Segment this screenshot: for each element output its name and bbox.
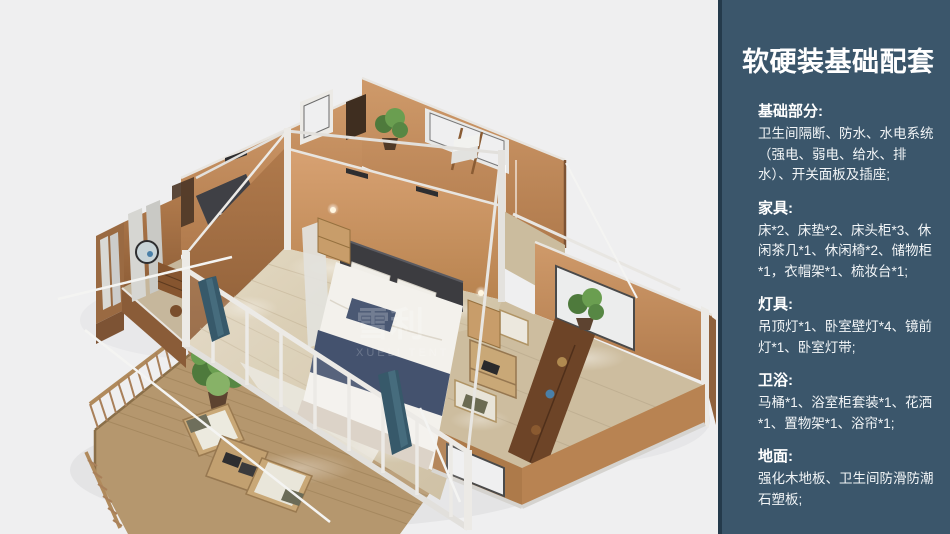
- section-floor-heading: 地面:: [758, 447, 936, 466]
- frame-post: [284, 128, 291, 250]
- section-basics-body: 卫生间隔断、防水、水电系统（强电、弱电、给水、排水）、开关面板及插座;: [758, 124, 936, 186]
- floorplan-render: 雪利 XUELI TENT: [0, 0, 720, 534]
- watermark-cn: 雪利: [356, 306, 424, 344]
- section-lighting: 灯具: 吊顶灯*1、卧室壁灯*4、镜前灯*1、卧室灯带;: [758, 295, 936, 358]
- section-furniture-body: 床*2、床垫*2、床头柜*3、休闲茶几*1、休闲椅*2、储物柜*1，衣帽架*1、…: [758, 221, 936, 283]
- section-floor: 地面: 强化木地板、卫生间防滑防潮石塑板;: [758, 447, 936, 510]
- watermark-en: XUELI TENT: [356, 347, 449, 359]
- section-bathroom: 卫浴: 马桶*1、浴室柜套装*1、花洒*1、置物架*1、浴帘*1;: [758, 371, 936, 434]
- info-panel: 软硬装基础配套 基础部分: 卫生间隔断、防水、水电系统（强电、弱电、给水、排水）…: [718, 0, 950, 534]
- section-bathroom-heading: 卫浴:: [758, 371, 936, 390]
- section-lighting-heading: 灯具:: [758, 295, 936, 314]
- section-floor-body: 强化木地板、卫生间防滑防潮石塑板;: [758, 469, 936, 510]
- section-basics: 基础部分: 卫生间隔断、防水、水电系统（强电、弱电、给水、排水）、开关面板及插座…: [758, 102, 936, 186]
- panel-title: 软硬装基础配套: [742, 46, 936, 78]
- frame-post: [498, 150, 505, 302]
- slide: 雪利 XUELI TENT 软硬装基础配套 基础部分: 卫生间隔断、防水、水电系…: [0, 0, 950, 534]
- section-bathroom-body: 马桶*1、浴室柜套装*1、花洒*1、置物架*1、浴帘*1;: [758, 393, 936, 434]
- section-furniture: 家具: 床*2、床垫*2、床头柜*3、休闲茶几*1、休闲椅*2、储物柜*1，衣帽…: [758, 199, 936, 283]
- vanity-mirror: [136, 241, 158, 263]
- section-furniture-heading: 家具:: [758, 199, 936, 218]
- panel-edge-strip: [718, 0, 722, 534]
- section-basics-heading: 基础部分:: [758, 102, 936, 121]
- section-lighting-body: 吊顶灯*1、卧室壁灯*4、镜前灯*1、卧室灯带;: [758, 317, 936, 358]
